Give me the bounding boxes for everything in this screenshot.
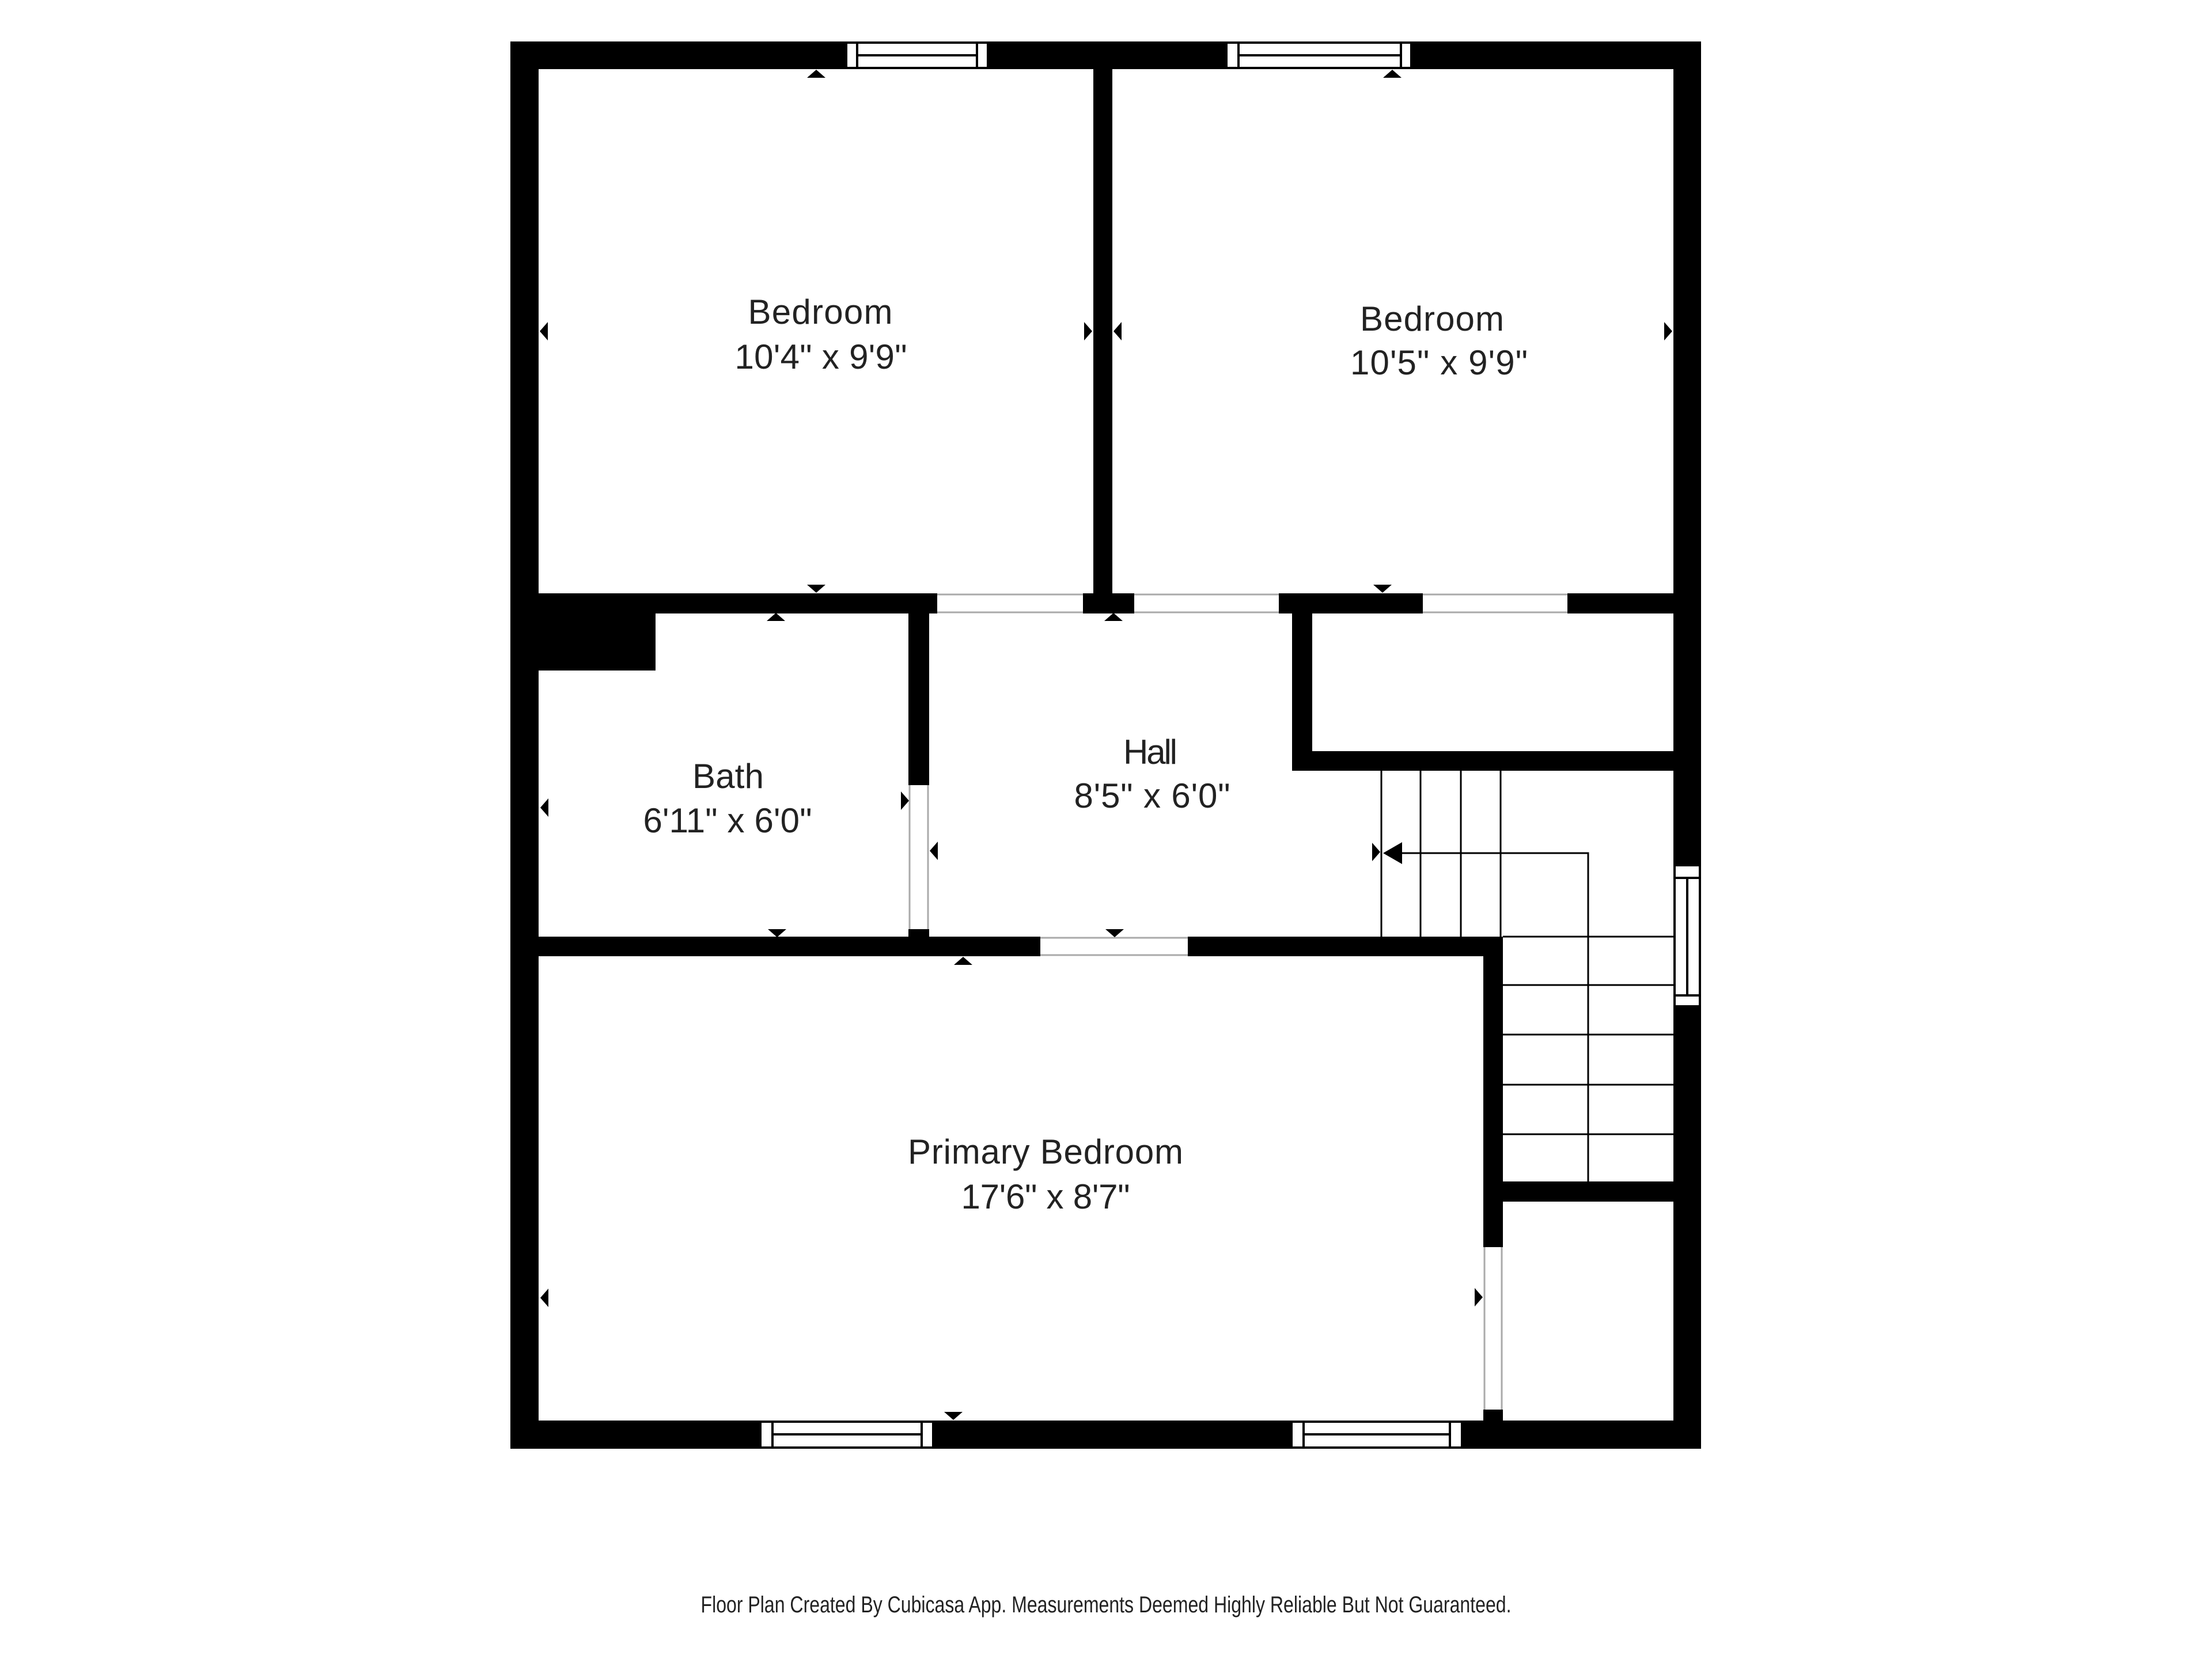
svg-text:Hall: Hall: [1123, 733, 1177, 771]
svg-text:Bedroom: Bedroom: [748, 293, 893, 331]
svg-text:17'6" x 8'7": 17'6" x 8'7": [961, 1177, 1130, 1216]
svg-text:Floor Plan Created By Cubicasa: Floor Plan Created By Cubicasa App. Meas…: [701, 1592, 1512, 1618]
svg-text:Bath: Bath: [692, 757, 764, 796]
svg-text:8'5" x 6'0": 8'5" x 6'0": [1074, 777, 1230, 815]
svg-text:6'11" x 6'0": 6'11" x 6'0": [643, 801, 812, 840]
svg-text:10'4" x 9'9": 10'4" x 9'9": [735, 338, 907, 376]
svg-text:Bedroom: Bedroom: [1360, 300, 1504, 338]
svg-text:Primary Bedroom: Primary Bedroom: [908, 1132, 1183, 1171]
svg-text:10'5" x 9'9": 10'5" x 9'9": [1350, 343, 1528, 382]
